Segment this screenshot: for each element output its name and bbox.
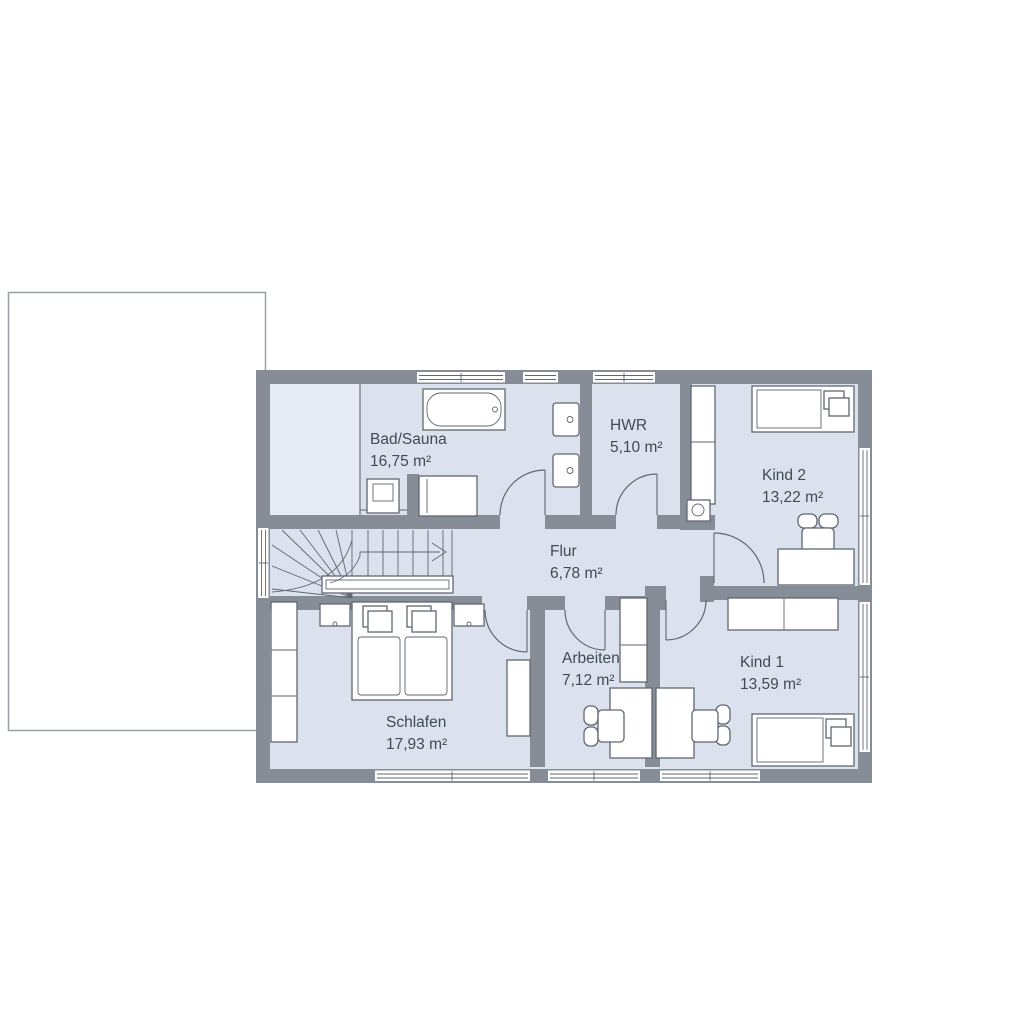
window-hwr [593, 372, 655, 383]
kind2-washbasin [687, 500, 710, 521]
arbeiten-shelf [620, 598, 647, 682]
window-bad-2 [523, 372, 558, 383]
room-label-kind2: Kind 2 [762, 467, 806, 484]
bathtub [423, 389, 505, 430]
nightstand-left [320, 604, 350, 626]
schlafen-wardrobe [271, 602, 297, 742]
room-area-kind2: 13,22 m² [762, 489, 823, 506]
window-kind1-bottom [660, 771, 760, 782]
kind2-desk [778, 549, 854, 585]
room-label-kind1: Kind 1 [740, 654, 784, 671]
toilet [367, 479, 399, 513]
floor-plan-svg: Bad/Sauna 16,75 m² HWR 5,10 m² Kind 2 13… [0, 0, 1024, 1024]
nightstand-right [454, 604, 484, 626]
window-schlafen [375, 771, 530, 782]
kind2-bed [752, 386, 854, 432]
sink-2 [553, 454, 579, 487]
room-label-flur: Flur [550, 543, 577, 560]
kind1-desk [656, 688, 694, 758]
room-label-hwr: HWR [610, 417, 647, 434]
double-bed [352, 602, 452, 700]
sauna-area [270, 384, 360, 515]
window-stairs [258, 528, 269, 598]
sink-1 [553, 403, 579, 436]
kind2-closet [691, 386, 715, 504]
floor-plan-page: Bad/Sauna 16,75 m² HWR 5,10 m² Kind 2 13… [0, 0, 1024, 1024]
room-area-kind1: 13,59 m² [740, 676, 801, 693]
shower-cabinet [419, 476, 477, 516]
annex-outline [9, 293, 266, 731]
window-arbeiten [548, 771, 640, 782]
room-area-flur: 6,78 m² [550, 565, 603, 582]
kind1-wardrobe [728, 598, 838, 630]
window-bad-1 [417, 372, 505, 383]
room-label-schlafen: Schlafen [386, 714, 446, 731]
room-label-arbeiten: Arbeiten [562, 650, 620, 667]
schlafen-cabinet [507, 660, 530, 736]
shower-wall-stub [407, 474, 419, 515]
room-area-hwr: 5,10 m² [610, 439, 663, 456]
kind1-bed [752, 714, 854, 766]
room-area-schlafen: 17,93 m² [386, 736, 447, 753]
window-kind1 [860, 602, 871, 752]
room-area-bad-sauna: 16,75 m² [370, 453, 431, 470]
window-kind2 [860, 448, 871, 585]
room-label-bad-sauna: Bad/Sauna [370, 431, 447, 448]
room-area-arbeiten: 7,12 m² [562, 672, 615, 689]
